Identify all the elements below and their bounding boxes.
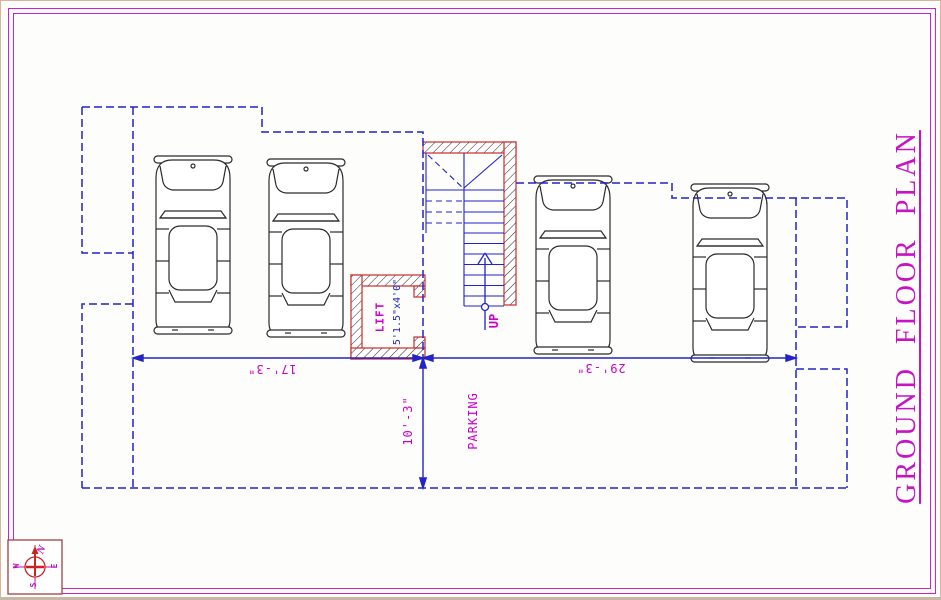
staircase [423,142,516,330]
drawing-title: GROUND FLOOR PLAN [893,130,921,504]
car-top-view-3 [534,176,612,354]
floor-plan-canvas [0,0,941,600]
lift-size-label: 5'1.5"x4'0" [393,279,403,345]
lift-shaft [351,275,425,359]
car-top-view-1 [154,156,232,334]
dimension-driveway-depth: 10'-3" [402,396,414,445]
lift-label: LIFT [375,302,386,333]
up-label: UP [488,314,500,328]
floor-plan-sheet: GROUND FLOOR PLAN 17'-3" 29'-3" 10'-3" P… [0,0,941,600]
car-top-view-2 [267,159,345,337]
dimension-right-bay: 29'-3" [576,362,625,374]
compass-south-label: S [30,583,38,588]
compass-west-label: W [13,564,21,569]
car-top-view-4 [691,184,769,362]
compass-east-label: E [51,564,59,569]
dimension-lines [133,355,796,488]
dimension-left-bay: 17'-3" [247,363,296,375]
parking-label: PARKING [467,392,479,450]
